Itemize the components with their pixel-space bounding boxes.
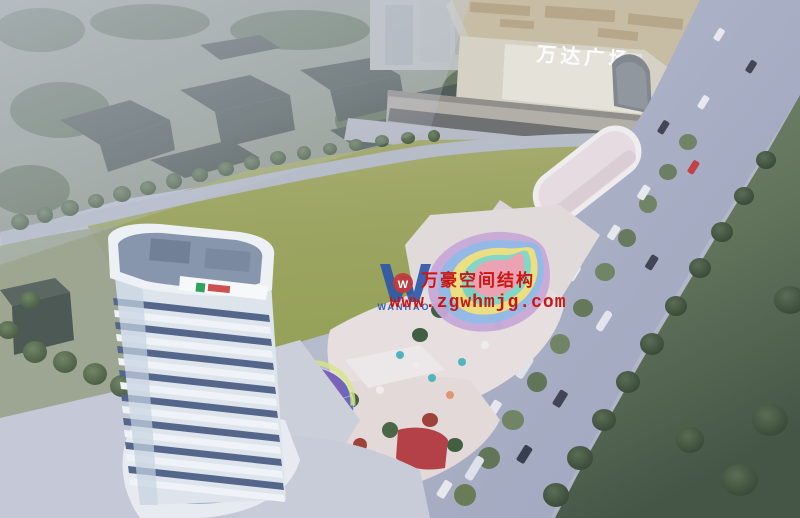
svg-text:www.zgwhmjg.com: www.zgwhmjg.com: [389, 293, 566, 313]
svg-text:W: W: [398, 279, 409, 291]
svg-text:万豪空间结构: 万豪空间结构: [420, 270, 535, 290]
